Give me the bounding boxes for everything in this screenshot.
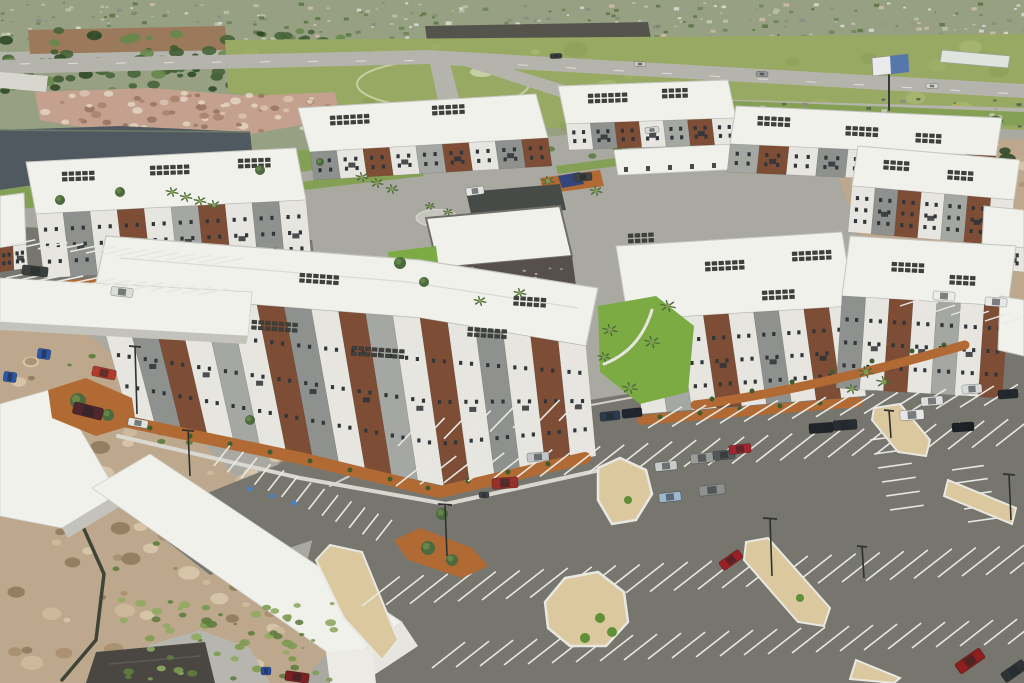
bldg-northeast-facade-balcony-5 <box>974 220 981 225</box>
bldg-north1-facade-balcony-5 <box>454 156 461 161</box>
hvac-clusters-unit <box>950 275 955 279</box>
bldg-north2-facade-seg-0 <box>566 123 593 150</box>
landscape-trees-palm-crown <box>170 190 174 194</box>
hvac-clusters-unit <box>648 233 653 237</box>
grass-band-garage-speck-35 <box>167 655 174 660</box>
suburb-texture-speck-41 <box>76 27 81 30</box>
bldg-north1-facade-window-5-2-0 <box>451 160 454 164</box>
bldg-north1-facade-window-5-2-1 <box>461 160 464 164</box>
bldg-northeast-facade-window-1-2-0 <box>878 210 881 214</box>
grass-band-garage-speck-46 <box>214 652 221 657</box>
parked-vehicles-vehicle-glass-23 <box>928 397 936 404</box>
suburb-texture-speck-123 <box>939 33 942 35</box>
bldg-central-facade-west-window-8-1-0 <box>324 347 327 351</box>
bldg-central-facade-west-window-2-3-0 <box>178 394 181 398</box>
suburb-texture-speck-87 <box>109 14 115 18</box>
construction-yard-speck-19 <box>993 99 996 101</box>
parked-vehicles-vehicle-14 <box>729 443 752 454</box>
bldg-north3-facade-window-2-2-0 <box>794 164 797 168</box>
hvac-clusters-unit <box>739 260 744 264</box>
bldg-central-facade-east-window-3-3-1 <box>532 432 535 436</box>
suburb-texture-speck-85 <box>664 31 668 34</box>
suburb-texture-speck-82 <box>903 7 906 9</box>
parked-vehicles-vehicle-33 <box>3 371 17 383</box>
bldg-center-right-facade-window-4-1-0 <box>737 334 740 338</box>
parked-vehicles-vehicle-9 <box>622 407 643 418</box>
bldg-north1-facade-window-5-1-1 <box>460 150 463 154</box>
hvac-clusters-unit <box>541 298 546 302</box>
hvac-clusters-unit <box>609 99 614 103</box>
parked-vehicles-vehicle-glass-12 <box>697 454 706 462</box>
bldg-north1-facade-window-3-1-1 <box>407 154 410 158</box>
hvac-clusters-unit <box>622 98 627 102</box>
bldg-east-facade-window-5-3-1 <box>971 371 974 375</box>
bldg-central-facade-east-window-3-3-0 <box>521 434 524 438</box>
dirt-bl-texture-speck-27 <box>121 553 140 565</box>
bldg-north2-facade-window-6-2-0 <box>719 134 722 138</box>
road-dashes-right-stripe-5 <box>710 76 720 77</box>
hvac-clusters-unit <box>481 328 486 332</box>
tree-band-left-speck-7 <box>65 75 75 81</box>
suburb-texture-speck-232 <box>723 29 728 32</box>
hvac-clusters-unit <box>676 88 681 92</box>
hvac-clusters-unit <box>792 252 797 256</box>
suburb-texture-speck-256 <box>218 22 222 25</box>
hvac-clusters-unit <box>789 295 794 299</box>
bldg-north3-facade-window-0-1-0 <box>736 152 739 156</box>
hvac-clusters-unit <box>238 159 243 163</box>
hvac-clusters-unit <box>676 94 681 98</box>
suburb-texture-speck-54 <box>218 16 222 18</box>
bldg-north1-facade-window-0-1-1 <box>328 158 331 162</box>
mound-texture-speck-34 <box>80 90 90 97</box>
bldg-central-facade-east-window-2-2-0 <box>491 400 494 404</box>
hvac-clusters-unit <box>961 176 966 180</box>
dirt-bl-texture-speck-2 <box>22 647 33 654</box>
hvac-clusters-unit <box>866 133 871 137</box>
suburb-texture-speck-39 <box>364 14 368 17</box>
tree-band-left-speck-97 <box>145 35 153 40</box>
mound-texture-speck-64 <box>181 91 188 96</box>
bldg-west-facade-window-4-1-0 <box>152 222 155 226</box>
bldg-north1-facade-window-0-2-1 <box>329 168 332 172</box>
bldg-central-facade-west-window-7-2-0 <box>304 381 307 385</box>
bldg-north2-facade-window-6-1-1 <box>728 125 731 129</box>
bldg-east-facade-window-5-1-0 <box>964 325 967 329</box>
road-dashes-right-stripe-4 <box>662 73 672 74</box>
bldg-central-facade-west-window-0-3-0 <box>125 384 128 388</box>
parked-vehicles-vehicle-34 <box>261 667 271 675</box>
suburb-texture-speck-213 <box>762 24 768 28</box>
handicap-marks-dot-2 <box>291 500 296 505</box>
bldg-north1-facade-window-6-1-1 <box>486 149 489 153</box>
suburb-texture-speck-279 <box>505 22 509 24</box>
landscape-trees-tree-hl-28 <box>246 416 251 421</box>
hvac-clusters-unit <box>595 94 600 98</box>
suburb-texture-speck-98 <box>100 6 104 8</box>
parked-vehicles-vehicle-19 <box>952 422 975 433</box>
bldg-central-facade-west-window-11-3-1 <box>428 440 431 444</box>
mound-texture-speck-51 <box>201 125 208 129</box>
island-5-plants-dot-0 <box>796 594 804 602</box>
suburb-texture-speck-1 <box>688 24 693 27</box>
dirt-bl-texture-speck-6 <box>7 586 24 597</box>
hvac-clusters-unit <box>307 273 312 277</box>
grass-band-garage-speck-55 <box>145 635 155 641</box>
mound-texture-speck-21 <box>60 101 65 104</box>
mound-texture-speck-63 <box>236 123 242 127</box>
parked-vehicles-vehicle-7 <box>527 452 550 463</box>
landscape-trees-palm-crown <box>882 380 887 385</box>
mound-texture-speck-27 <box>307 100 314 104</box>
hvac-clusters-unit <box>765 116 770 120</box>
mound-texture-speck-36 <box>104 91 113 97</box>
bldg-center-right-facade-window-2-1-1 <box>697 337 700 341</box>
suburb-texture-speck-116 <box>924 27 929 30</box>
bldg-northeast-facade-window-4-2-1 <box>957 216 960 220</box>
bldg-central-facade-west-window-2-2-1 <box>181 363 184 367</box>
hvac-clusters-unit <box>662 94 667 98</box>
bldg-center-right-facade-window-5-1-1 <box>772 332 775 336</box>
parked-vehicles-vehicle-glass-7 <box>534 453 542 460</box>
hvac-clusters-unit <box>890 166 895 170</box>
suburb-texture-speck-25 <box>227 21 232 24</box>
parked-vehicles-vehicle-glass-36 <box>638 63 642 66</box>
grass-band-garage-speck-5 <box>312 670 319 675</box>
hvac-clusters-unit <box>785 123 790 127</box>
bldg-northeast-facade-window-4-3-0 <box>946 227 949 231</box>
road-dashes-right-stripe-8 <box>854 84 864 85</box>
suburb-texture-speck-199 <box>911 23 914 25</box>
landscape-trees-tree-hl-27 <box>438 510 444 516</box>
bldg-north3-facade-window-1-2-1 <box>776 163 779 167</box>
suburb-texture-speck-214 <box>851 23 855 25</box>
bldg-north1-facade-balcony-7 <box>507 153 514 158</box>
hvac-clusters-unit <box>778 117 783 121</box>
center-right-shrubs-dot-1 <box>698 411 703 416</box>
dirt-bl-texture-speck-65 <box>65 557 81 567</box>
suburb-texture-speck-290 <box>777 34 780 36</box>
bldg-central-facade-west-window-0-2-1 <box>128 355 131 359</box>
suburb-texture-speck-259 <box>982 25 985 27</box>
hvac-clusters-unit <box>320 274 325 278</box>
hvac-clusters-unit <box>669 94 674 98</box>
bldg-west-facade-window-1-3-1 <box>86 258 89 262</box>
suburb-texture-speck-32 <box>346 33 352 36</box>
central-shrubs-dot-0 <box>148 426 153 431</box>
construction-yard-speck-17 <box>916 98 920 100</box>
grass-band-garage-speck-22 <box>168 600 174 604</box>
bldg-east-edge-roof <box>982 206 1024 248</box>
bldg-northeast-facade-window-0-1-0 <box>856 196 859 200</box>
mound-texture-speck-37 <box>194 124 198 127</box>
bldg-west-small-facade-window-0-2-0 <box>2 261 5 265</box>
mound-texture-speck-50 <box>213 109 220 113</box>
construction-yard-speck-14 <box>882 99 885 101</box>
hvac-clusters-unit <box>602 99 607 103</box>
hvac-clusters-unit <box>682 88 687 92</box>
grass-band-garage-speck-49 <box>330 627 338 632</box>
handicap-marks-dot-1 <box>269 493 274 498</box>
bldg-central-facade-east-window-4-3-1 <box>558 430 561 434</box>
bldg-west-small-facade-window-0-2-1 <box>8 261 11 265</box>
suburb-texture-speck-0 <box>611 15 615 18</box>
suburb-texture-speck-231 <box>980 14 983 16</box>
bldg-north1-facade-window-8-1-0 <box>529 146 532 150</box>
dirt-bl-texture-speck-56 <box>202 580 210 585</box>
landscape-trees-palm-crown <box>864 370 869 375</box>
parked-vehicles-vehicle-glass-1 <box>118 288 127 295</box>
tree-band-left-speck-35 <box>177 74 183 78</box>
parked-vehicles-vehicle-glass-6 <box>500 478 510 487</box>
suburb-texture-speck-49 <box>674 7 679 10</box>
parked-vehicles-vehicle-24 <box>962 384 983 394</box>
bldg-central-facade-west-window-4-3-1 <box>242 406 245 410</box>
suburb-texture-speck-76 <box>954 29 956 30</box>
hvac-clusters-unit <box>320 280 325 284</box>
hvac-clusters-unit <box>873 127 878 131</box>
bldg-north1-facade-window-6-2-1 <box>488 158 491 162</box>
parked-vehicles-vehicle-32 <box>37 348 51 360</box>
mound-texture-speck-31 <box>238 113 247 119</box>
hvac-clusters-unit <box>899 262 904 266</box>
mound-texture-speck-4 <box>183 121 191 126</box>
tree-band-left-speck-36 <box>128 83 137 89</box>
landscape-trees-palm-crown <box>478 299 482 303</box>
bldg-central-facade-east-window-0-1-1 <box>443 360 446 364</box>
parked-vehicles-vehicle-11 <box>659 491 682 502</box>
suburb-texture-speck-55 <box>1004 32 1008 35</box>
bldg-center-right-facade-window-3-2-0 <box>715 359 718 363</box>
bldg-central-facade-west-window-8-2-1 <box>342 387 345 391</box>
parked-vehicles-vehicle-glass-35 <box>554 55 558 58</box>
bldg-center-right-facade-window-2-2-1 <box>700 360 703 364</box>
hvac-clusters-unit <box>912 269 917 273</box>
grass-band-garage-speck-13 <box>187 670 197 677</box>
bldg-east-facade-window-3-3-1 <box>923 368 926 372</box>
hvac-clusters-unit <box>501 335 506 339</box>
bldg-north1-facade-window-8-1-1 <box>539 146 542 150</box>
dirt-bl-texture-speck-39 <box>21 656 43 670</box>
bldg-central-facade-east-window-0-1-0 <box>432 359 435 363</box>
bldg-central-facade-west-window-4-2-0 <box>224 369 227 373</box>
suburb-texture-speck-293 <box>91 16 93 17</box>
hvac-clusters-unit <box>662 89 667 93</box>
dirt-bl-tufts-speck-34 <box>88 354 95 359</box>
suburb-texture-speck-299 <box>752 29 755 31</box>
dirt-bl-tufts-speck-35 <box>179 613 187 618</box>
hvac-clusters-unit <box>177 170 182 174</box>
hvac-clusters-unit <box>725 261 730 265</box>
suburb-texture-speck-153 <box>327 20 331 22</box>
bldg-central-facade-west-window-7-2-1 <box>315 383 318 387</box>
suburb-texture-speck-241 <box>661 34 666 37</box>
bldg-north2-facade-window-4-2-1 <box>680 135 683 139</box>
suburb-texture-speck-132 <box>749 19 751 20</box>
suburb-texture-speck-79 <box>706 21 710 24</box>
parked-vehicles-vehicle-glass-28 <box>580 174 587 180</box>
clubhouse-windows-speck-21 <box>549 268 551 269</box>
suburb-texture-speck-244 <box>107 20 109 21</box>
hvac-clusters-unit <box>299 279 304 283</box>
hvac-clusters-unit <box>819 250 824 254</box>
suburb-texture-speck-108 <box>992 22 997 25</box>
suburb-texture-speck-190 <box>259 16 264 19</box>
suburb-texture-speck-286 <box>293 37 296 39</box>
bldg-central-facade-east-window-0-3-1 <box>454 440 457 444</box>
bldg-west-facade-window-4-1-1 <box>163 221 166 225</box>
construction-yard-speck-20 <box>958 104 961 106</box>
parked-vehicles-vehicle-glass-14 <box>736 445 745 452</box>
road-dashes-right-stripe-6 <box>758 79 768 80</box>
bldg-north3-facade-window-3-2-0 <box>823 165 826 169</box>
bldg-north3-facade-window-0-2-1 <box>746 162 749 166</box>
suburb-texture-speck-124 <box>711 30 716 33</box>
hvac-clusters-unit <box>534 297 539 301</box>
suburb-texture-speck-175 <box>382 2 384 3</box>
bldg-central-facade-west-window-11-2-0 <box>411 397 414 401</box>
field-patches-speck-9 <box>785 58 799 67</box>
bldg-central-facade-west-window-5-1-1 <box>254 339 257 343</box>
bldg-north2-facade-window-0-2-0 <box>573 139 576 143</box>
grass-band-garage-speck-15 <box>290 665 299 671</box>
bldg-northeast-facade-window-1-1-1 <box>888 199 891 203</box>
grass-band-garage-speck-29 <box>299 633 304 636</box>
suburb-texture-speck-26 <box>1 20 3 21</box>
hvac-clusters-unit <box>771 122 776 126</box>
bldg-northeast-facade-window-5-3-1 <box>979 230 982 234</box>
bldg-east-facade-window-0-1-1 <box>855 318 858 322</box>
landscape-trees-tree-hl-22 <box>420 278 425 283</box>
mound-texture-speck-32 <box>147 116 157 122</box>
hvac-clusters-unit <box>326 280 331 284</box>
hvac-clusters-unit <box>719 267 724 271</box>
hvac-clusters-unit <box>635 239 640 243</box>
parked-vehicles-vehicle-glass-37 <box>760 73 764 76</box>
hvac-clusters-unit <box>432 111 437 115</box>
bldg-central-facade-west-window-2-3-1 <box>189 396 192 400</box>
light-poles-pole-arm-5 <box>884 410 894 411</box>
hvac-clusters-unit <box>799 251 804 255</box>
bldg-center-right-facade-window-7-2-1 <box>825 351 828 355</box>
suburb-texture-speck-21 <box>785 20 788 22</box>
suburb-texture-speck-16 <box>463 5 468 8</box>
hvac-clusters-unit <box>286 322 291 326</box>
hvac-clusters-unit <box>62 177 67 181</box>
hvac-clusters-unit <box>265 163 270 167</box>
hvac-clusters-unit <box>82 171 87 175</box>
suburb-texture-speck-212 <box>700 18 702 19</box>
hvac-clusters-unit <box>912 263 917 267</box>
bldg-north1-facade-window-3-1-0 <box>396 154 399 158</box>
parked-vehicles-vehicle-10 <box>655 460 678 471</box>
suburb-texture-speck-183 <box>308 7 313 10</box>
parked-vehicles-vehicle-38 <box>926 83 938 89</box>
hvac-clusters-unit <box>313 279 318 283</box>
bldg-north1-facade-seg-6 <box>469 141 499 171</box>
bldg-west-facade-window-0-1-1 <box>55 227 58 231</box>
hvac-clusters-unit <box>963 281 968 285</box>
island-5-plants <box>796 594 804 602</box>
suburb-texture-speck-14 <box>409 26 412 28</box>
mound-texture-speck-60 <box>230 97 241 104</box>
hvac-clusters-unit <box>846 126 851 130</box>
suburb-texture-speck-167 <box>10 21 13 23</box>
hvac-clusters-unit <box>446 105 451 109</box>
hvac-clusters-unit <box>712 267 717 271</box>
bldg-west-facade-window-5-1-1 <box>189 220 192 224</box>
bldg-east-facade-window-1-2-0 <box>868 342 871 346</box>
hvac-clusters-unit <box>459 110 464 114</box>
bldg-north2-facade-window-1-1-0 <box>596 130 599 134</box>
east-shrubs-dot-6 <box>942 343 947 348</box>
bldg-east-facade-window-2-2-0 <box>891 343 894 347</box>
hvac-clusters-unit <box>792 257 797 261</box>
dirt-bl-texture-speck-105 <box>111 522 130 535</box>
suburb-texture-speck-233 <box>130 7 133 9</box>
bldg-east-facade-window-3-1-1 <box>926 322 929 326</box>
hvac-clusters-unit <box>739 266 744 270</box>
hvac-clusters-unit <box>502 329 507 333</box>
bldg-center-right-facade-window-7-2-0 <box>815 352 818 356</box>
tree-band-left-speck-99 <box>53 27 64 34</box>
bldg-east-facade-window-0-3-1 <box>852 364 855 368</box>
hvac-clusters-unit <box>334 275 339 279</box>
landscape-trees-tree-hl-30 <box>116 188 121 193</box>
bldg-north2-facade-window-3-2-1 <box>656 136 659 140</box>
hvac-clusters-unit <box>919 269 924 273</box>
dirt-bl-texture-speck-100 <box>207 470 214 475</box>
hvac-clusters-unit <box>358 352 363 356</box>
grass-band-garage-speck-37 <box>173 667 183 673</box>
island-1-plants-dot-1 <box>607 627 617 637</box>
mound-texture-speck-20 <box>196 104 207 111</box>
suburb-texture-speck-283 <box>809 33 812 35</box>
suburb-texture-speck-277 <box>366 10 370 13</box>
bldg-north3-facade-window-3-1-1 <box>836 156 839 160</box>
bldg-northeast-facade-window-0-1-1 <box>865 197 868 201</box>
hvac-clusters-unit <box>69 172 74 176</box>
bldg-central-facade-east-balcony-3 <box>522 406 529 411</box>
suburb-texture-speck-131 <box>783 3 789 6</box>
bldg-northeast-facade-window-5-2-0 <box>971 218 974 222</box>
hvac-clusters-unit <box>495 329 500 333</box>
bldg-central-facade-east-window-3-2-0 <box>517 399 520 403</box>
suburb-texture-speck-143 <box>703 2 706 4</box>
bldg-northeast-facade-window-1-3-1 <box>886 222 889 226</box>
construction-yard-speck-23 <box>802 103 808 106</box>
bldg-east-facade-window-2-1-1 <box>902 321 905 325</box>
bldg-north1-facade-window-2-1-1 <box>381 155 384 159</box>
bldg-center-right-facade-balcony-7 <box>820 356 827 361</box>
grass-band-garage-speck-47 <box>285 618 291 622</box>
dirt-bl-texture-speck-36 <box>42 608 61 621</box>
suburb-texture-speck-139 <box>390 23 393 25</box>
bldg-north1-facade-seg-2 <box>363 147 393 177</box>
dirt-bl-tufts-speck-16 <box>112 567 119 572</box>
mound-texture-speck-39 <box>40 109 50 115</box>
hvac-clusters-unit <box>758 122 763 126</box>
east-shrubs-dot-5 <box>910 349 915 354</box>
bldg-north1-facade-window-2-2-0 <box>371 165 374 169</box>
bldg-north1-facade-window-7-1-1 <box>513 147 516 151</box>
suburb-texture-speck-152 <box>567 14 570 16</box>
suburb-texture-speck-287 <box>723 20 728 23</box>
suburb-texture-speck-110 <box>811 8 814 10</box>
bldg-central-facade-west-window-8-1-1 <box>335 348 338 352</box>
bldg-center-right-facade-window-5-3-0 <box>769 379 772 383</box>
bldg-west-facade-window-7-2-0 <box>234 234 237 238</box>
